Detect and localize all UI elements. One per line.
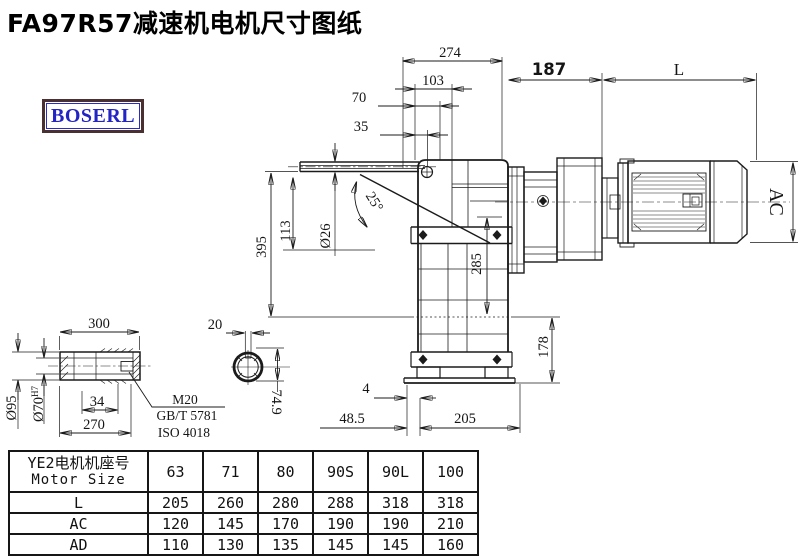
- dim-25deg-label: 25°: [362, 189, 386, 215]
- bolt-diamond-icon: [419, 230, 428, 240]
- dim-395: 395: [254, 172, 298, 316]
- dim-95: Ø95: [4, 333, 20, 429]
- table-row: L 205 260 280 288 318 318: [9, 492, 478, 513]
- table-cell: 160: [423, 534, 478, 555]
- face-hole-icon: [422, 167, 433, 178]
- dim-103: 103: [395, 73, 472, 160]
- table-cell: 210: [423, 513, 478, 534]
- table-cell: 288: [313, 492, 368, 513]
- dim-187-label: 187: [532, 60, 566, 79]
- dim-74-9-label: 74.9: [268, 389, 284, 414]
- side-view-gearmotor: [495, 158, 790, 273]
- dim-34-label: 34: [90, 394, 105, 410]
- dim-L-label: L: [674, 60, 684, 79]
- header-cn: YE2电机机座号: [10, 454, 147, 472]
- dim-48-5: 48.5: [320, 411, 406, 428]
- thread-callout: M20 GB/T 5781 ISO 4018: [129, 372, 225, 440]
- dim-395-label: 395: [254, 236, 270, 258]
- dim-48-5-label: 48.5: [339, 411, 364, 427]
- dim-26: Ø26: [318, 143, 335, 256]
- dim-70h7: Ø70H7: [30, 338, 47, 424]
- dim-187: 187: [509, 60, 602, 164]
- dim-178: 178: [268, 317, 560, 383]
- dim-4-label: 4: [362, 381, 370, 397]
- table-cell: 90S: [313, 451, 368, 492]
- table-cell: 100: [423, 451, 478, 492]
- dim-270-label: 270: [83, 417, 105, 433]
- table-cell: 110: [148, 534, 203, 555]
- dim-20-label: 20: [208, 317, 223, 333]
- dimensions: 274 103 70 35: [254, 45, 798, 436]
- dim-35: 35: [354, 119, 448, 166]
- dim-L: L: [604, 60, 757, 160]
- dim-26-label: Ø26: [318, 224, 334, 249]
- table-cell: 71: [203, 451, 258, 492]
- table-cell: 120: [148, 513, 203, 534]
- table-cell: 90L: [368, 451, 423, 492]
- dim-20: 20: [208, 317, 270, 333]
- table-header-row: YE2电机机座号 Motor Size 63 71 80 90S 90L 100: [9, 451, 478, 492]
- bolt-diamond-icon: [419, 355, 428, 365]
- table-cell: 280: [258, 492, 313, 513]
- shaft-section-view: 20 74.9: [208, 317, 290, 415]
- thread-gbt-label: GB/T 5781: [157, 408, 218, 423]
- dim-205: 205: [420, 384, 520, 433]
- bolt-diamond-icon: [539, 197, 547, 206]
- dim-AC-label: AC: [765, 188, 787, 216]
- dim-274: 274: [403, 45, 502, 168]
- dim-300: 300: [60, 316, 140, 350]
- dim-34: 34: [82, 384, 118, 414]
- dim-25deg: 25°: [355, 182, 387, 227]
- dim-113-label: 113: [278, 220, 294, 241]
- dim-35-label: 35: [354, 119, 369, 135]
- table-cell: 318: [368, 492, 423, 513]
- table-cell: 190: [368, 513, 423, 534]
- table-cell: 130: [203, 534, 258, 555]
- dim-285-label: 285: [469, 253, 485, 275]
- thread-m20-label: M20: [172, 392, 198, 407]
- dim-95-label: Ø95: [4, 396, 20, 421]
- page: { "title": "FA97R57减速机电机尺寸图纸", "logo_tex…: [0, 0, 800, 555]
- row-label: L: [9, 492, 148, 513]
- table-cell: 318: [423, 492, 478, 513]
- table-cell: 135: [258, 534, 313, 555]
- table-row: AC 120 145 170 190 190 210: [9, 513, 478, 534]
- thread-iso-label: ISO 4018: [158, 425, 210, 440]
- table-cell: 190: [313, 513, 368, 534]
- dim-70-label: 70: [352, 90, 367, 106]
- dim-178-label: 178: [536, 336, 552, 358]
- dim-274-label: 274: [439, 45, 462, 61]
- dim-300-label: 300: [88, 316, 110, 332]
- table-cell: 205: [148, 492, 203, 513]
- bolt-diamond-icon: [493, 355, 502, 365]
- table-row: AD 110 130 135 145 145 160: [9, 534, 478, 555]
- table-cell: 80: [258, 451, 313, 492]
- table-cell: 145: [203, 513, 258, 534]
- header-en: Motor Size: [10, 472, 147, 489]
- dim-270: 270: [60, 384, 132, 437]
- table-cell: 145: [368, 534, 423, 555]
- dim-205-label: 205: [454, 411, 476, 427]
- table-cell: 145: [313, 534, 368, 555]
- table-cell: 260: [203, 492, 258, 513]
- dim-103-label: 103: [422, 73, 444, 89]
- row-label: AC: [9, 513, 148, 534]
- table-cell: 170: [258, 513, 313, 534]
- bolt-diamond-icon: [493, 230, 502, 240]
- motor-size-table: YE2电机机座号 Motor Size 63 71 80 90S 90L 100…: [8, 450, 479, 556]
- shaft-detail-view: Ø95 Ø70H7 300 34 270 M20: [4, 316, 225, 440]
- table-header-cell: YE2电机机座号 Motor Size: [9, 451, 148, 492]
- row-label: AD: [9, 534, 148, 555]
- table-cell: 63: [148, 451, 203, 492]
